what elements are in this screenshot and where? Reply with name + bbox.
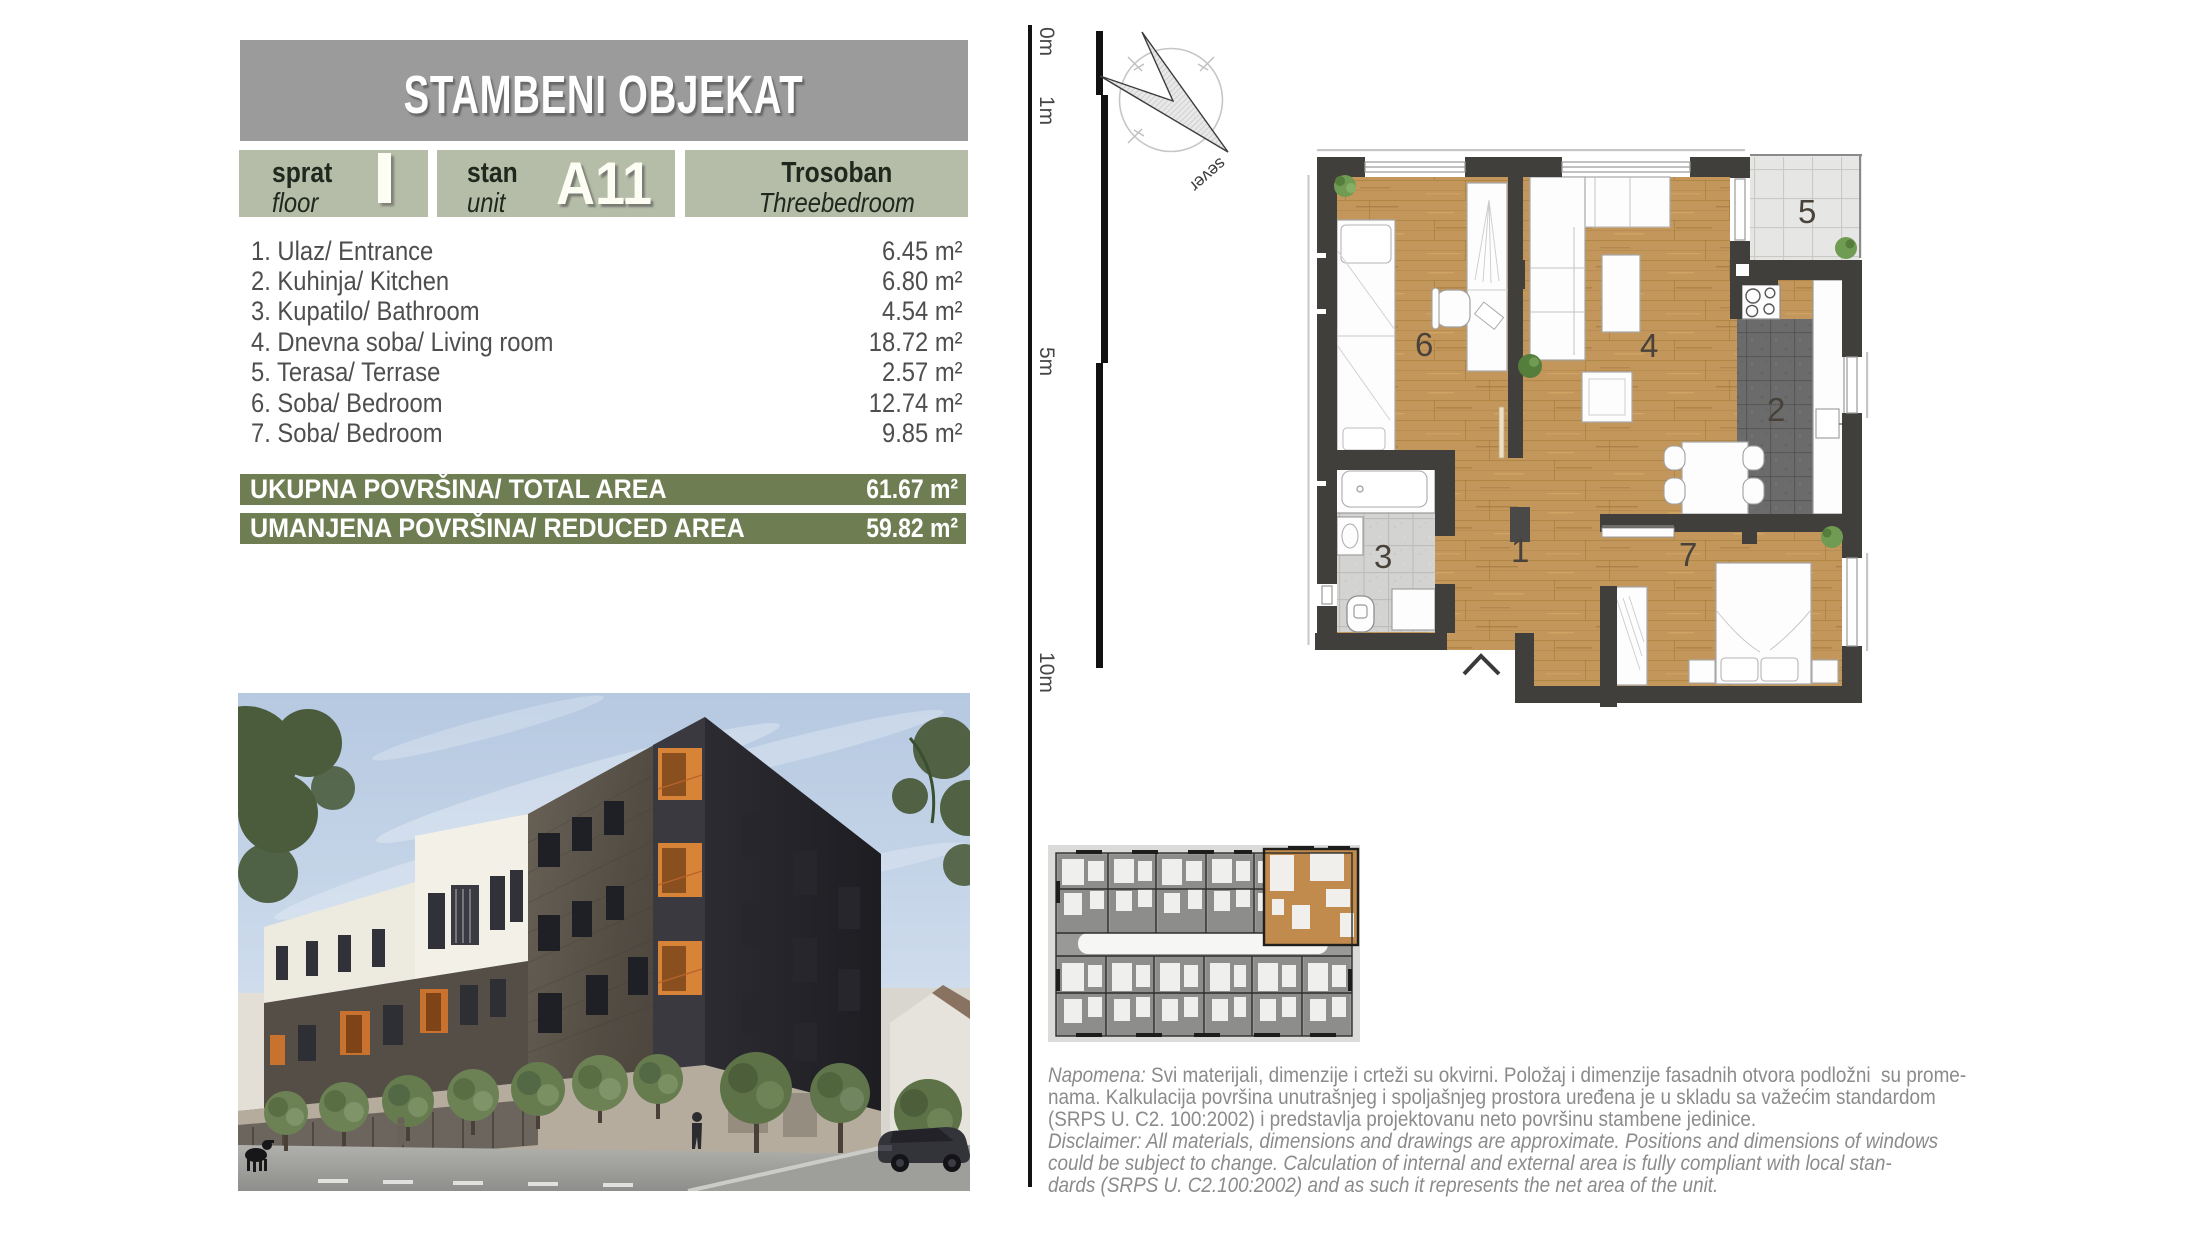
svg-text:2: 2 — [1767, 391, 1785, 428]
svg-text:7: 7 — [1679, 536, 1697, 573]
svg-text:6: 6 — [1415, 326, 1433, 363]
svg-text:sever: sever — [1186, 154, 1230, 196]
svg-text:4: 4 — [1640, 327, 1658, 364]
svg-text:3: 3 — [1374, 538, 1392, 575]
svg-text:5: 5 — [1798, 193, 1816, 230]
svg-text:1: 1 — [1511, 532, 1529, 569]
